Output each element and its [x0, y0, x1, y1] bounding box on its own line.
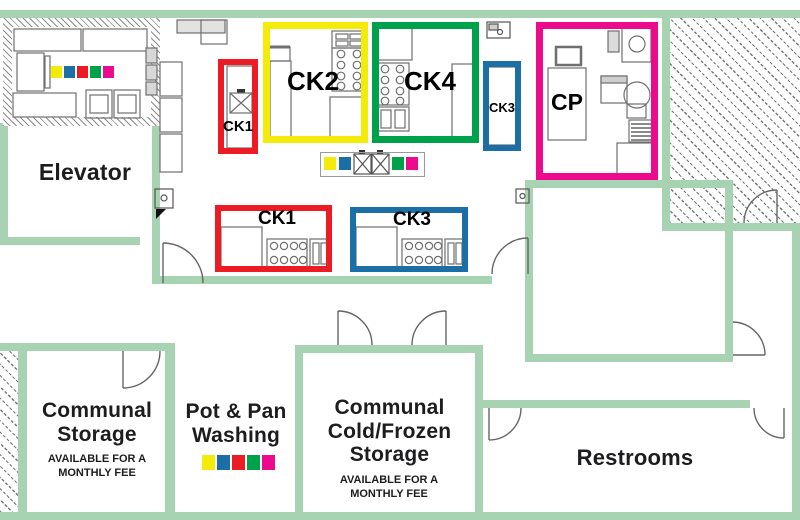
ck3-line-label: CK3 [382, 210, 442, 229]
potpan-swatch-yellow [202, 455, 215, 470]
ck3-top-label: CK3 [483, 101, 521, 114]
cold-storage-label: Communal Cold/Frozen Storage [322, 396, 457, 467]
ck2-label: CK2 [283, 68, 343, 94]
ck4-label: CK4 [400, 68, 460, 94]
center-swatch-pink [406, 157, 418, 170]
potpan-swatch-pink [262, 455, 275, 470]
communal-storage-note: AVAILABLE FOR A MONTHLY FEE [37, 453, 157, 481]
prep-swatch-blue [64, 66, 75, 78]
zone-ck1-top [218, 59, 258, 154]
prep-swatch-red [77, 66, 88, 78]
center-swatch-blue [339, 157, 351, 170]
potpan-swatch-red [232, 455, 245, 470]
ck1-line-label: CK1 [247, 209, 307, 228]
communal-storage-label: Communal Storage [37, 399, 157, 446]
potpan-swatch-blue [217, 455, 230, 470]
prep-swatch-yellow [51, 66, 62, 78]
ck1-top-label: CK1 [218, 119, 258, 134]
center-swatch-yellow [324, 157, 336, 170]
restrooms-label: Restrooms [520, 446, 750, 471]
floor-plan: CK1 CK2 CK4 CK3 CP CK1 CK3 Elevator Comm… [0, 0, 800, 520]
cold-storage-note: AVAILABLE FOR A MONTHLY FEE [329, 474, 449, 502]
prep-swatch-green [90, 66, 101, 78]
cp-label: CP [545, 91, 589, 114]
potpan-swatch-green [247, 455, 260, 470]
corridor-shelves [160, 20, 227, 172]
center-swatch-green [392, 157, 404, 170]
pot-pan-label: Pot & Pan Washing [177, 400, 295, 447]
prep-swatch-pink [103, 66, 114, 78]
elevator-label: Elevator [20, 160, 150, 186]
